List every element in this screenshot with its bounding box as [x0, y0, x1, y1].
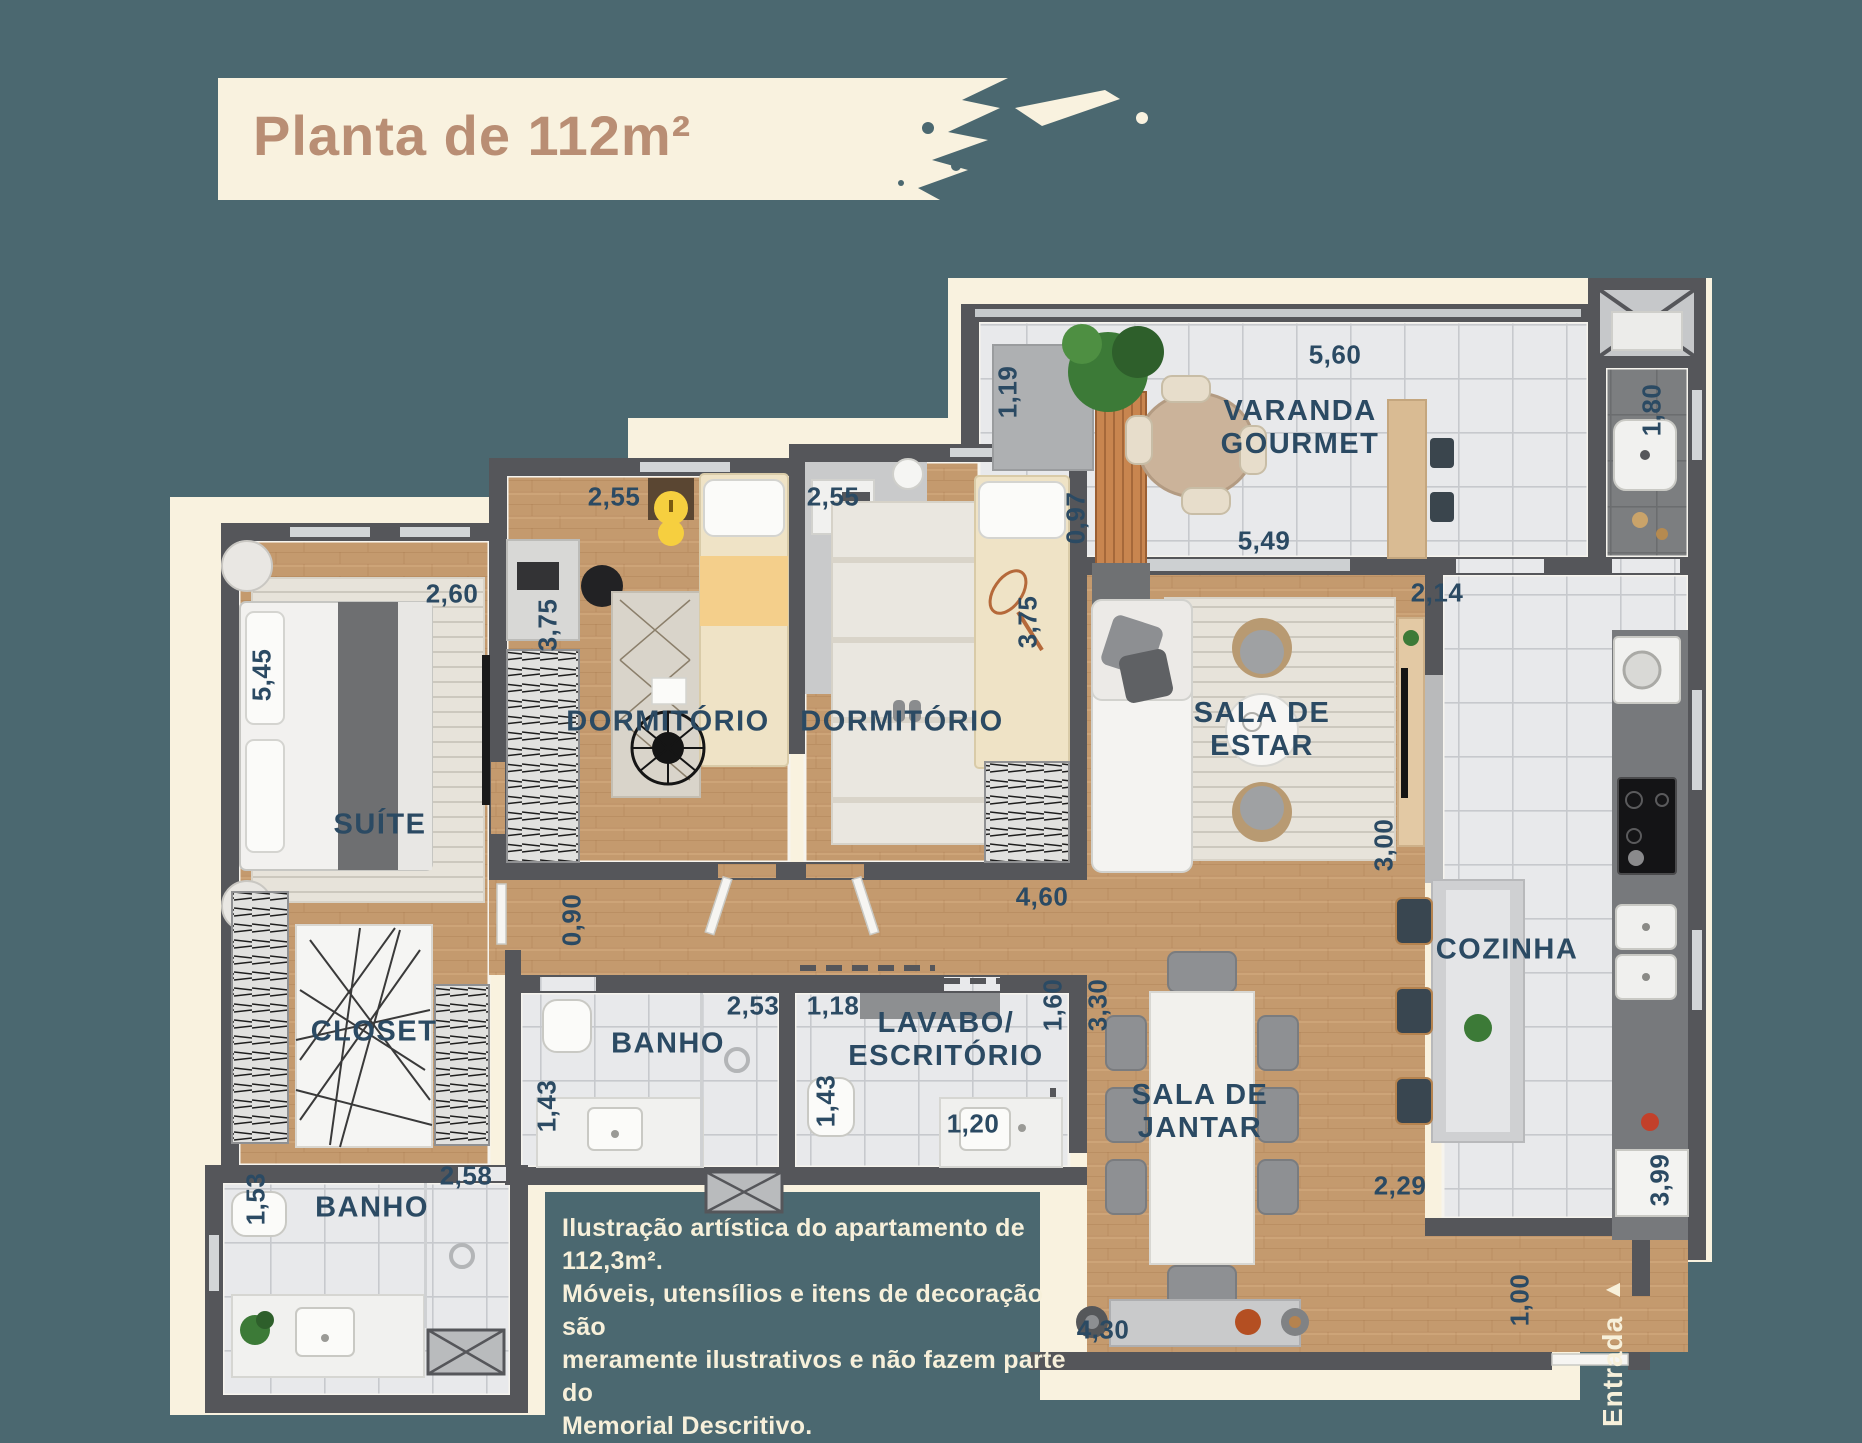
- room-suite: [222, 541, 490, 931]
- room-dorm2: [805, 459, 1069, 862]
- floorplan-page: Planta de 112m² SUÍTE DORMITÓRIO DORMITÓ…: [0, 0, 1862, 1423]
- half-wall: [1425, 675, 1443, 883]
- title-banner: [218, 78, 1148, 200]
- room-estar: [1092, 598, 1424, 872]
- floorplan-graphic: [0, 0, 1862, 1423]
